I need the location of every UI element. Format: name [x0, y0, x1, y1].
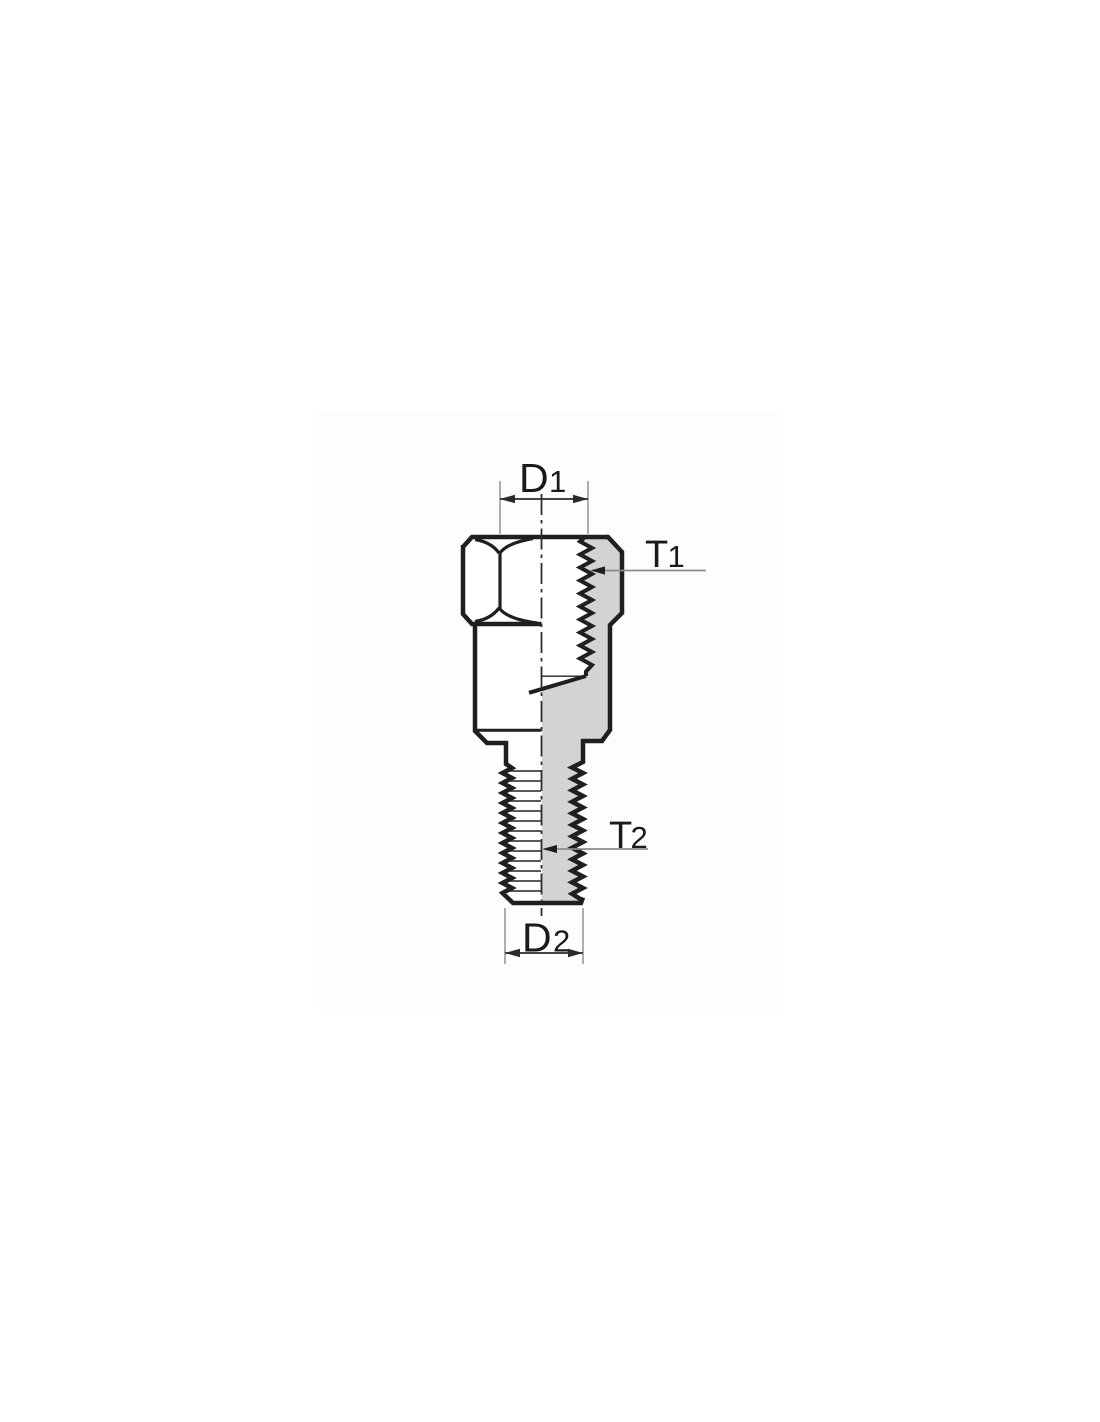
t1-label-subscript: 1: [668, 539, 685, 574]
adapter-technical-drawing: D 1 T 1 T 2 D: [0, 0, 1100, 1422]
t2-label-letter: T: [609, 815, 632, 857]
screenshot: D 1 T 1 T 2 D: [0, 0, 1100, 1422]
t1-label-letter: T: [645, 534, 668, 576]
d2-label-letter: D: [522, 915, 552, 961]
d1-label-subscript: 1: [549, 464, 566, 499]
d2-label-subscript: 2: [553, 924, 570, 959]
d1-label-letter: D: [519, 455, 549, 501]
t2-label-subscript: 2: [631, 820, 648, 855]
